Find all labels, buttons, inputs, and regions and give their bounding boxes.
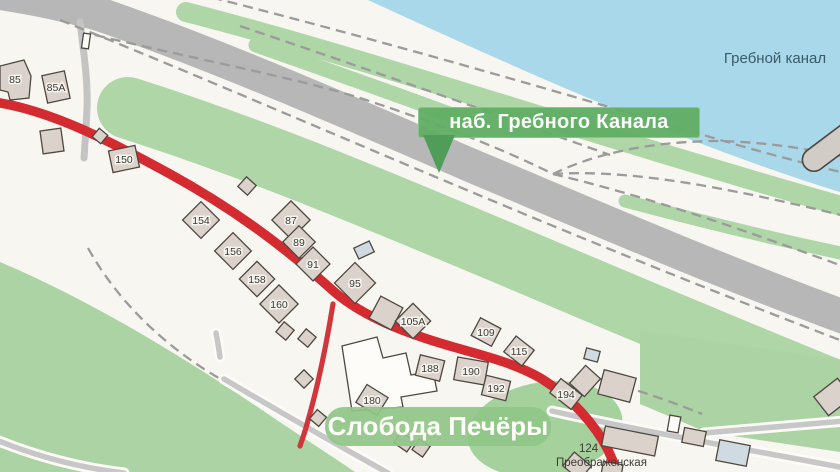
district-label-banner[interactable]: Слобода Печёры (325, 407, 551, 446)
building[interactable] (298, 329, 316, 347)
building[interactable] (716, 440, 750, 467)
map-graphics: 8585A15015415615816087899195105A10911518… (0, 0, 840, 472)
building-number-105A: 105A (401, 316, 426, 328)
water-name-label[interactable]: Гребной канал (700, 50, 840, 67)
building-number-89: 89 (293, 237, 305, 249)
street-caption-number: 124 (556, 442, 696, 456)
building-number-95: 95 (349, 278, 361, 290)
building[interactable] (295, 370, 313, 388)
street-name-caption: 124 Преображенская (556, 442, 696, 471)
building-number-87: 87 (285, 215, 297, 227)
building-number-85A: 85A (47, 82, 66, 94)
building-number-150: 150 (115, 154, 133, 166)
building-number-85: 85 (9, 74, 21, 86)
building[interactable] (354, 241, 374, 259)
building[interactable] (584, 348, 600, 362)
building-number-190: 190 (462, 366, 480, 378)
building-number-154: 154 (192, 215, 210, 227)
building[interactable] (40, 128, 64, 154)
building[interactable] (276, 322, 294, 340)
building-number-158: 158 (248, 274, 266, 286)
building-number-180: 180 (363, 395, 381, 407)
building-number-194: 194 (557, 389, 575, 401)
building[interactable] (81, 33, 90, 49)
building-number-192: 192 (487, 383, 505, 395)
building-number-91: 91 (307, 259, 319, 271)
street-label-pointer-icon (423, 135, 455, 173)
building-number-188: 188 (421, 363, 439, 375)
map-canvas[interactable]: 8585A15015415615816087899195105A10911518… (0, 0, 840, 472)
building[interactable] (667, 415, 681, 433)
building-number-115: 115 (511, 346, 528, 358)
building-number-156: 156 (224, 246, 242, 258)
building-number-109: 109 (477, 327, 495, 339)
building-number-160: 160 (270, 299, 288, 311)
street-label-banner[interactable]: наб. Гребного Канала (418, 107, 700, 138)
street-caption-name: Преображенская (556, 456, 696, 470)
